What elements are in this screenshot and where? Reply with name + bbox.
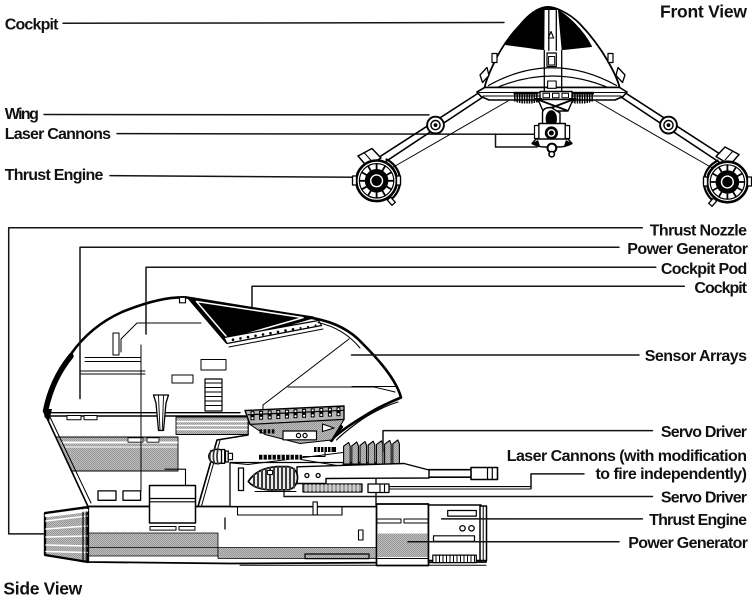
svg-text:Servo Driver: Servo Driver: [661, 490, 747, 507]
svg-text:Thrust Nozzle: Thrust Nozzle: [650, 222, 747, 239]
svg-text:Front View: Front View: [660, 1, 747, 21]
svg-text:Wing: Wing: [5, 106, 39, 123]
svg-text:Side View: Side View: [3, 578, 82, 598]
svg-text:Thrust Engine: Thrust Engine: [649, 512, 747, 529]
svg-text:Cockpit: Cockpit: [5, 17, 59, 34]
svg-text:Servo Driver: Servo Driver: [661, 424, 747, 441]
svg-text:Power Generator: Power Generator: [628, 535, 748, 552]
svg-text:Cockpit Pod: Cockpit Pod: [661, 261, 747, 278]
svg-text:Laser Cannons: Laser Cannons: [5, 126, 111, 143]
svg-text:Cockpit: Cockpit: [694, 280, 747, 297]
svg-text:Sensor Arrays: Sensor Arrays: [645, 348, 747, 365]
svg-text:Power Generator: Power Generator: [627, 241, 748, 258]
svg-text:Thrust Engine: Thrust Engine: [5, 167, 104, 184]
svg-text:to fire independently): to fire independently): [596, 466, 748, 483]
svg-text:Laser Cannons (with modificati: Laser Cannons (with modification: [507, 448, 747, 465]
